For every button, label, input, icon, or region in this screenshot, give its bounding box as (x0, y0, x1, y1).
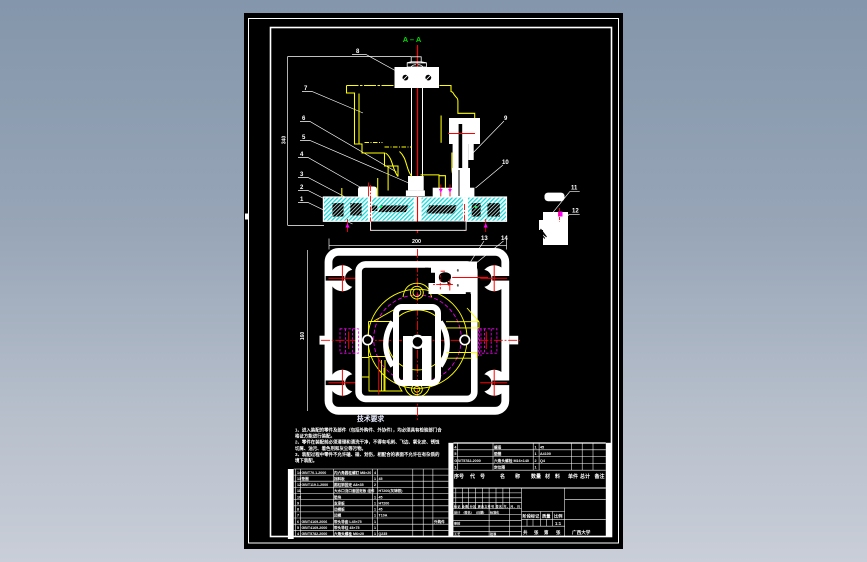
svg-text:11: 11 (571, 186, 578, 192)
svg-text:1: 1 (454, 466, 456, 470)
svg-text:螺母: 螺母 (494, 444, 502, 449)
svg-text:第: 第 (544, 529, 549, 536)
svg-text:外购件: 外购件 (433, 519, 445, 524)
svg-text:垫圈: 垫圈 (494, 451, 502, 456)
svg-text:材 料: 材 料 (545, 473, 560, 480)
svg-text:六角头螺栓 M16×140: 六角头螺栓 M16×140 (494, 458, 529, 463)
svg-text:A4100: A4100 (540, 452, 551, 456)
svg-text:标记 处数 分区 更改文件号 签名 年、月、日: 标记 处数 分区 更改文件号 签名 年、月、日 (453, 504, 520, 509)
svg-text:3、装配过程中零件不允许磕、碰、划伤，相配合的表面不允许在有: 3、装配过程中零件不允许磕、碰、划伤，相配合的表面不允许在有杂质的 (295, 451, 440, 458)
svg-text:GB/T119.1-2000: GB/T119.1-2000 (302, 483, 329, 487)
svg-text:160: 160 (300, 332, 306, 341)
svg-text:10: 10 (502, 160, 509, 166)
svg-text:45: 45 (379, 477, 383, 481)
svg-text:1: 1 (374, 477, 376, 481)
svg-text:备注: 备注 (594, 473, 605, 480)
svg-text:张: 张 (556, 529, 561, 536)
svg-text:7: 7 (297, 514, 299, 518)
svg-text:4: 4 (374, 471, 376, 475)
svg-text:A – A: A – A (403, 35, 422, 44)
svg-text:5: 5 (297, 526, 299, 530)
svg-text:六角头螺栓 M6×20: 六角头螺栓 M6×20 (334, 531, 364, 536)
svg-text:12: 12 (297, 483, 301, 487)
svg-text:1: 1 (535, 466, 537, 470)
svg-text:名 称: 名 称 (500, 473, 520, 480)
svg-text:支承板: 支承板 (333, 501, 345, 506)
svg-text:标准化: 标准化 (489, 509, 500, 514)
svg-text:2: 2 (535, 459, 537, 463)
svg-text:8: 8 (297, 508, 299, 512)
svg-text:5: 5 (454, 452, 456, 456)
svg-text:工艺: 工艺 (454, 531, 460, 536)
svg-text:垫圈: 垫圈 (302, 476, 310, 481)
svg-text:批准: 批准 (490, 531, 497, 536)
svg-text:2: 2 (374, 483, 376, 487)
svg-text:比例: 比例 (554, 513, 562, 520)
svg-text:HT200: HT200 (379, 502, 390, 506)
svg-text:1: 1 (535, 445, 537, 449)
svg-text:10: 10 (297, 495, 301, 499)
svg-text:带头导柱 45×75: 带头导柱 45×75 (334, 525, 359, 530)
svg-text:GB/T5782-2000: GB/T5782-2000 (302, 532, 328, 536)
svg-text:1: 1 (374, 502, 376, 506)
svg-text:(日期): (日期) (476, 509, 484, 514)
svg-text:GB/T4169-2006: GB/T4169-2006 (302, 520, 328, 524)
svg-text:境下装配。: 境下装配。 (295, 457, 317, 464)
svg-text:大水口浇口套固定板 组件: 大水口浇口套固定板 组件 (334, 488, 375, 493)
svg-text:13: 13 (297, 477, 301, 481)
svg-text:广西大学: 广西大学 (572, 529, 591, 536)
svg-text:4: 4 (297, 532, 299, 536)
svg-text:45: 45 (379, 495, 383, 499)
svg-text:T10A: T10A (379, 514, 388, 518)
svg-text:Q235: Q235 (379, 532, 388, 536)
svg-text:1: 1 (374, 520, 376, 524)
svg-text:动模板: 动模板 (334, 507, 345, 512)
svg-text:1: 1 (374, 495, 376, 499)
svg-text:14: 14 (297, 471, 301, 475)
svg-text:技术要求: 技术要求 (357, 414, 384, 423)
svg-text:GB/T4169-2000: GB/T4169-2000 (302, 526, 328, 530)
svg-text:1: 1 (374, 508, 376, 512)
svg-text:凹模: 凹模 (334, 513, 342, 518)
svg-text:GB/T5782-2000: GB/T5782-2000 (454, 459, 480, 463)
svg-text:9: 9 (297, 502, 299, 506)
svg-text:1: 1 (374, 514, 376, 518)
svg-text:1:1: 1:1 (555, 521, 562, 526)
svg-text:圆柱销固定 A8×35: 圆柱销固定 A8×35 (334, 482, 364, 487)
svg-text:序号: 序号 (453, 473, 464, 480)
svg-text:质量: 质量 (542, 513, 551, 520)
svg-text:340: 340 (282, 136, 288, 145)
svg-text:12: 12 (572, 209, 579, 215)
svg-text:GB/T70.1-2000: GB/T70.1-2000 (302, 471, 327, 475)
svg-text:代 号: 代 号 (469, 473, 485, 480)
svg-text:1: 1 (535, 452, 537, 456)
svg-text:200: 200 (412, 239, 421, 245)
svg-text:设计: 设计 (454, 509, 461, 514)
svg-text:内六角圆柱螺钉 M8×20: 内六角圆柱螺钉 M8×20 (334, 470, 371, 475)
svg-text:切屑、油污、着色剂和灰尘等污物。: 切屑、油污、着色剂和灰尘等污物。 (295, 445, 366, 452)
svg-text:HT200(灰铸铁): HT200(灰铸铁) (379, 488, 404, 493)
svg-text:单件: 单件 (568, 473, 578, 480)
svg-text:定位圈: 定位圈 (493, 465, 505, 470)
svg-text:2、零件在装配前必须清理和清洗干净，不得有毛刺、飞边、氧化皮: 2、零件在装配前必须清理和清洗干净，不得有毛刺、飞边、氧化皮、锈蚀 (295, 439, 440, 446)
svg-text:6: 6 (297, 520, 299, 524)
svg-text:14: 14 (501, 236, 508, 242)
svg-text:11: 11 (297, 489, 301, 493)
svg-text:数量: 数量 (531, 473, 541, 480)
svg-text:45: 45 (379, 508, 383, 512)
svg-text:挡料板: 挡料板 (334, 476, 345, 481)
svg-text:13: 13 (481, 236, 488, 242)
svg-text:垫块: 垫块 (334, 494, 342, 499)
svg-text:45: 45 (540, 445, 544, 449)
svg-text:带头导套 L45×75: 带头导套 L45×75 (334, 519, 362, 524)
svg-text:1: 1 (374, 526, 376, 530)
svg-text:共: 共 (523, 529, 528, 536)
svg-text:(签名): (签名) (464, 509, 472, 514)
svg-text:格证方能进行装配。: 格证方能进行装配。 (295, 433, 335, 440)
svg-text:1、进入装配的零件及部件（包括外购件、外协件），均必须具有检: 1、进入装配的零件及部件（包括外购件、外协件），均必须具有检验部门合 (295, 427, 442, 434)
svg-text:张: 张 (534, 529, 539, 536)
svg-text:审核: 审核 (454, 521, 461, 526)
svg-text:阶段标记: 阶段标记 (523, 513, 541, 520)
svg-text:1: 1 (374, 532, 376, 536)
svg-text:总计: 总计 (580, 473, 590, 480)
